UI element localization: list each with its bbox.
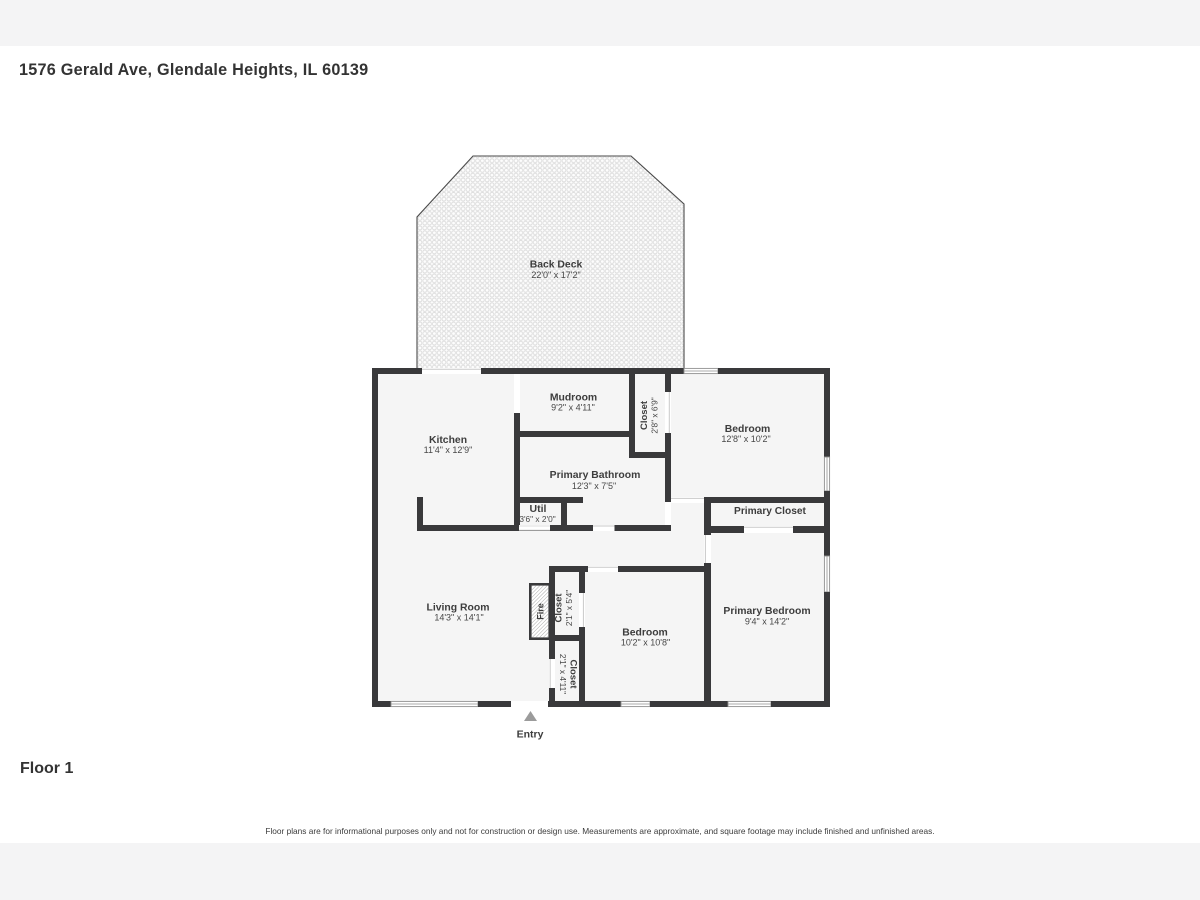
svg-text:Primary Closet: Primary Closet <box>734 506 807 517</box>
svg-text:Back Deck: Back Deck <box>530 260 583 271</box>
svg-text:14'3" x 14'1": 14'3" x 14'1" <box>434 613 483 623</box>
svg-text:12'3" x 7'5": 12'3" x 7'5" <box>572 481 616 491</box>
svg-text:22'0" x 17'2": 22'0" x 17'2" <box>531 270 580 280</box>
svg-text:2'1" x 4'11": 2'1" x 4'11" <box>558 654 568 694</box>
svg-text:2'1" x 5'4": 2'1" x 5'4" <box>564 590 574 626</box>
svg-text:Entry: Entry <box>517 729 544 741</box>
svg-text:Closet: Closet <box>639 400 650 430</box>
svg-text:Closet: Closet <box>554 593 565 623</box>
svg-text:9'4" x 14'2": 9'4" x 14'2" <box>745 617 789 627</box>
svg-text:Fire: Fire <box>536 603 546 620</box>
svg-text:9'2" x 4'11": 9'2" x 4'11" <box>551 403 595 413</box>
svg-text:11'4" x 12'9": 11'4" x 12'9" <box>424 445 473 455</box>
svg-text:10'2" x 10'8": 10'2" x 10'8" <box>621 638 670 648</box>
svg-text:2'8" x 6'9": 2'8" x 6'9" <box>650 397 660 433</box>
svg-text:Closet: Closet <box>568 659 579 689</box>
svg-text:Primary Bathroom: Primary Bathroom <box>550 470 641 481</box>
svg-text:12'8" x 10'2": 12'8" x 10'2" <box>721 434 770 444</box>
svg-text:Primary Bedroom: Primary Bedroom <box>723 606 810 617</box>
svg-text:3'6" x 2'0": 3'6" x 2'0" <box>519 514 555 524</box>
